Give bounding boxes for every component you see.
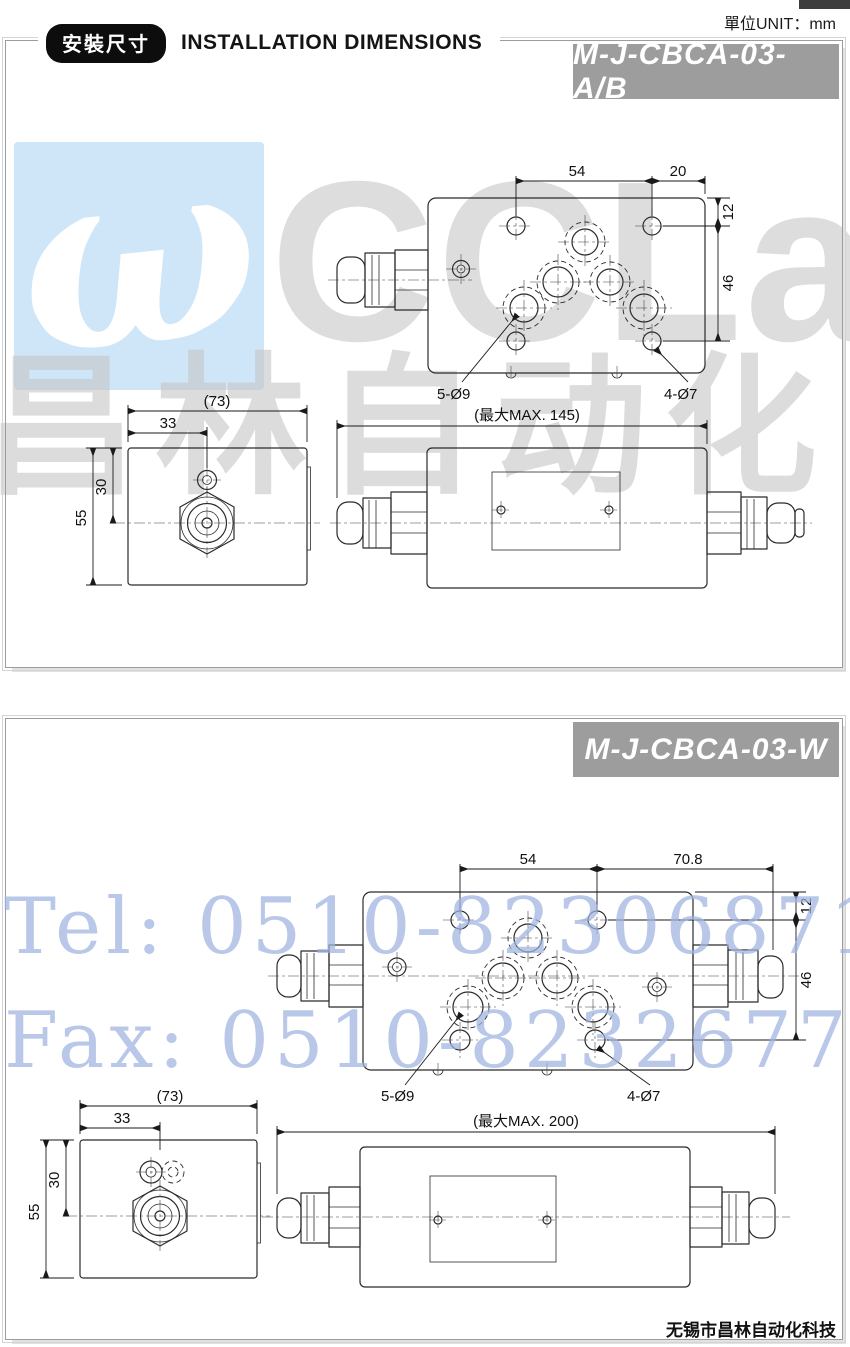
dim-12: 12 (720, 204, 737, 221)
dim-55: 55 (26, 1204, 43, 1221)
section-badge: 安裝尺寸 (46, 24, 166, 63)
label-mount-holes: 5-Ø9 (381, 1088, 414, 1105)
drawing-panel1: 54 20 12 46 5-Ø9 4-Ø7 (5, 40, 843, 666)
p1-hole-pattern (446, 209, 672, 358)
p2-front-dimensions: (最大MAX. 200) (277, 1113, 775, 1194)
dim-46: 46 (720, 275, 737, 292)
p1-side-dimensions: (73) 33 30 55 (73, 393, 307, 585)
p2-front-view: (最大MAX. 200) (262, 1113, 790, 1287)
dim-30: 30 (93, 479, 110, 496)
dim-30: 30 (46, 1172, 63, 1189)
dim-54: 54 (520, 851, 537, 868)
dim-33: 33 (160, 415, 177, 432)
dim-73: (73) (157, 1088, 184, 1105)
p2-side-dimensions: (73) 33 30 55 (26, 1088, 257, 1278)
label-port-holes: 4-Ø7 (627, 1088, 660, 1105)
label-port-holes: 4-Ø7 (664, 386, 697, 403)
label-mount-holes: 5-Ø9 (437, 386, 470, 403)
dim-33: 33 (114, 1110, 131, 1127)
p1-front-dimensions: (最大MAX. 145) (337, 407, 707, 498)
footer-company: 无锡市昌林自动化科技 (0, 1316, 844, 1341)
p1-top-view: 54 20 12 46 5-Ø9 4-Ø7 (328, 163, 737, 403)
p1-side-view: (73) 33 30 55 (73, 393, 320, 585)
catalog-page: ω CCLair 昌林自动化 單位UNIT：mm 安裝尺寸 INSTALLATI… (0, 0, 850, 1347)
p1-top-dimensions: 54 20 12 46 5-Ø9 4-Ø7 (437, 163, 737, 403)
dim-max-145: (最大MAX. 145) (474, 407, 580, 424)
page-title: INSTALLATION DIMENSIONS (181, 31, 482, 55)
p2-side-view: (73) 33 30 55 (26, 1088, 270, 1278)
corner-strip (799, 0, 850, 9)
section-header: 安裝尺寸 INSTALLATION DIMENSIONS (38, 25, 500, 61)
dim-max-200: (最大MAX. 200) (473, 1113, 579, 1130)
dim-73: (73) (204, 393, 231, 410)
dim-54: 54 (569, 163, 586, 180)
watermark-tel: Tel: 0510-82306871 (4, 888, 850, 966)
watermark-fax: Fax: 0510-82326771 (4, 1002, 850, 1080)
dim-70-8: 70.8 (673, 851, 702, 868)
p1-front-view: (最大MAX. 145) (330, 407, 812, 588)
unit-label: 單位UNIT：mm (724, 10, 836, 34)
dim-55: 55 (73, 510, 90, 527)
dim-46: 46 (798, 972, 815, 989)
dim-20: 20 (670, 163, 687, 180)
